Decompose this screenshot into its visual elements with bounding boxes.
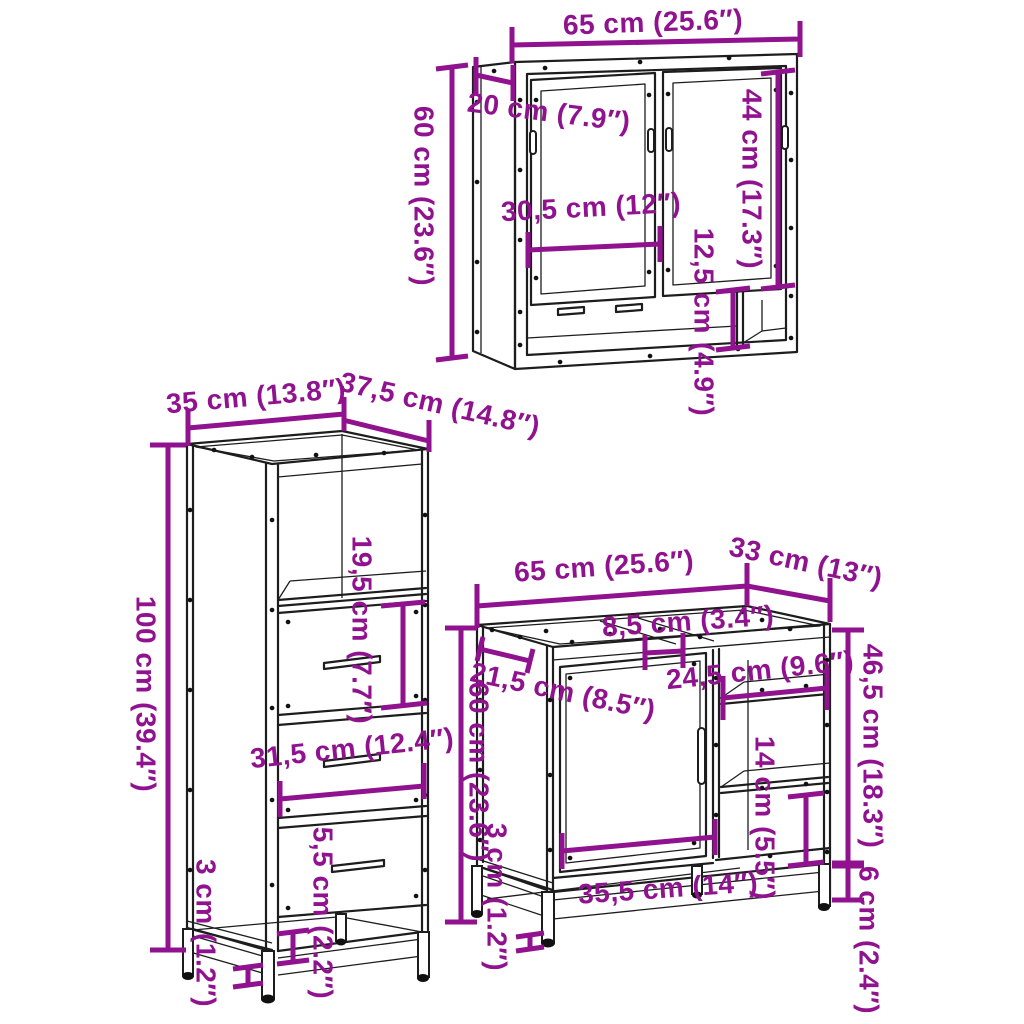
dim-tall-leg-height-line (233, 965, 263, 987)
dim-label-sink-right-height: 46,5 cm (18.3″) (858, 644, 889, 849)
mirror-center-handle-right (666, 128, 672, 151)
mirror-left-door-handle (530, 131, 536, 154)
dim-label-tall-width: 35 cm (13.8″) (165, 373, 347, 420)
dim-label-tall-depth: 37,5 cm (14.8″) (337, 366, 543, 442)
dim-label-sink-depth: 33 cm (13″) (727, 531, 886, 594)
tall-foot-right (417, 974, 429, 982)
mirror-shelf-divider (737, 289, 743, 345)
mirror-open-shelf-interior (527, 300, 786, 343)
mirror-cabinet: 65 cm (25.6″) 60 cm (23.6″) 20 cm (7.9″)… (409, 3, 801, 416)
dim-mirror-inner-width-line (528, 226, 660, 268)
dim-label-sink-base-height: 6 cm (2.4″) (854, 866, 885, 1014)
dim-tall-drawer-height-line (381, 602, 427, 708)
tall-leg-front (262, 951, 274, 998)
diagram-page: 65 cm (25.6″) 60 cm (23.6″) 20 cm (7.9″)… (0, 0, 1024, 1024)
dim-label-mirror-shelf-height: 12,5 cm (4.9″) (689, 228, 720, 417)
dim-label-mirror-depth: 20 cm (7.9″) (466, 87, 633, 138)
dim-label-tall-drawer-height: 19,5 cm (7.7″) (347, 536, 378, 725)
dim-mirror-shelf-height-line (716, 288, 750, 350)
dim-label-mirror-door-height: 44 cm (17.3″) (737, 89, 768, 269)
mirror-center-handle-left (648, 129, 654, 152)
dim-label-mirror-height: 60 cm (23.6″) (409, 106, 440, 286)
mirror-door-clips (558, 304, 642, 315)
dim-label-tall-leg-height: 3 cm (1.2″) (191, 859, 222, 1007)
dim-sink-leg-height-line (516, 933, 544, 951)
mirror-right-door-handle (782, 126, 788, 149)
sink-foot-right (818, 903, 830, 911)
sink-cabinet: 65 cm (25.6″) 33 cm (13″) 8,5 cm (3.4″) … (445, 531, 889, 1014)
tall-leg-right (418, 932, 429, 977)
dim-label-sink-width: 65 cm (25.6″) (513, 544, 695, 587)
furniture-dimension-diagram: 65 cm (25.6″) 60 cm (23.6″) 20 cm (7.9″)… (0, 0, 1024, 1024)
sink-leg-right (819, 864, 830, 906)
tall-base-frame-rails (190, 917, 422, 975)
dim-label-tall-clearance: 5,5 cm (2.2″) (308, 827, 339, 999)
dim-sink-shelf-spacing-line (788, 793, 824, 866)
dim-label-tall-height: 100 cm (39.4″) (131, 596, 162, 792)
sink-leg-left (472, 866, 482, 913)
sink-foot-left (471, 910, 483, 918)
sink-cabinet-dimensions: 65 cm (25.6″) 33 cm (13″) 8,5 cm (3.4″) … (445, 531, 889, 1014)
dim-label-sink-leg-height: 3 cm (1.2″) (482, 823, 513, 971)
dim-label-sink-rail-gap: 8,5 cm (3.4″) (601, 600, 775, 643)
dim-label-mirror-width: 65 cm (25.6″) (562, 3, 743, 40)
tall-corner-posts (187, 444, 428, 951)
tall-foot-front (261, 995, 275, 1004)
dim-mirror-height-line (436, 65, 468, 360)
sink-door-handle (698, 728, 705, 784)
